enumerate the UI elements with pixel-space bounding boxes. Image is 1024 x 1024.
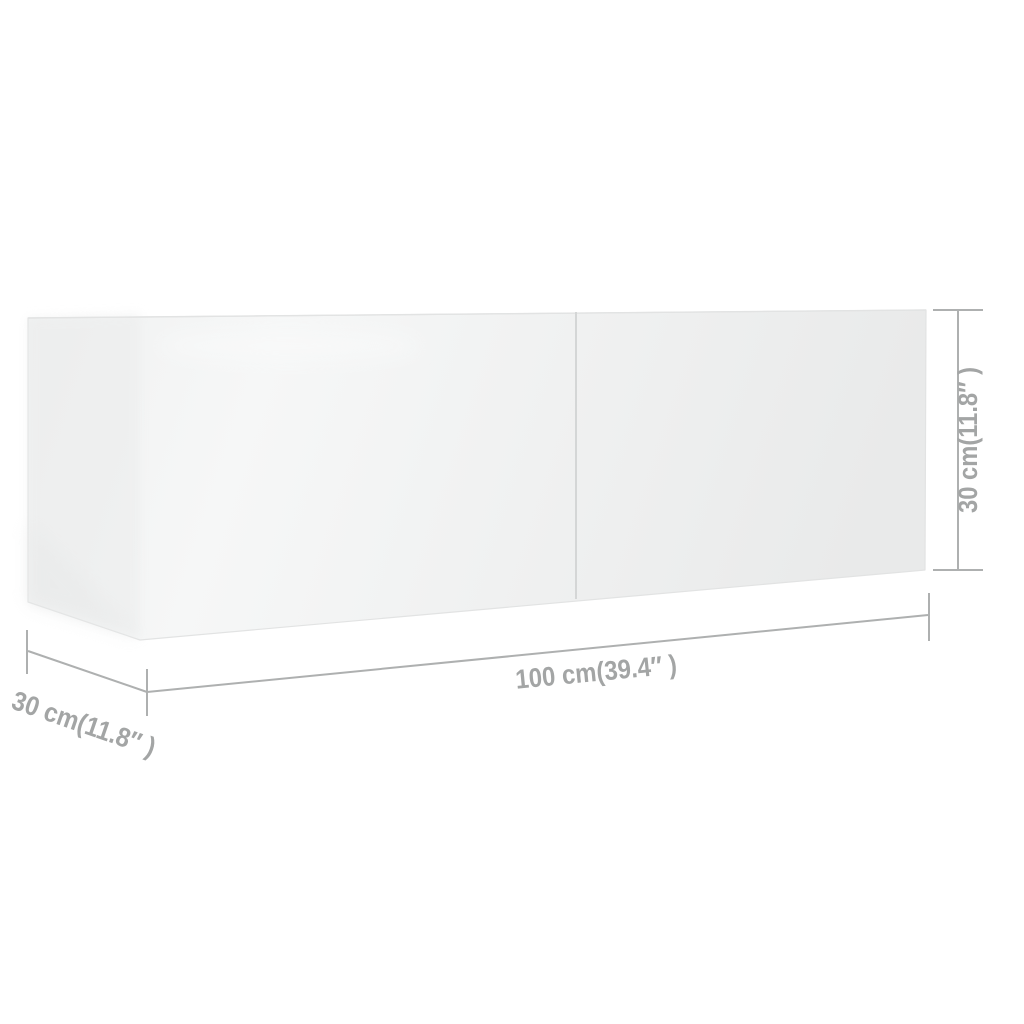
cabinet-top-highlight xyxy=(160,330,420,362)
product-dimension-diagram: 100 cm(39.4″ ) 30 cm(11.8″ ) 30 cm(11.8″… xyxy=(0,0,1024,1024)
diagram-canvas: 100 cm(39.4″ ) 30 cm(11.8″ ) 30 cm(11.8″… xyxy=(0,0,1024,1024)
height-dimension-label: 30 cm(11.8″ ) xyxy=(953,367,983,513)
